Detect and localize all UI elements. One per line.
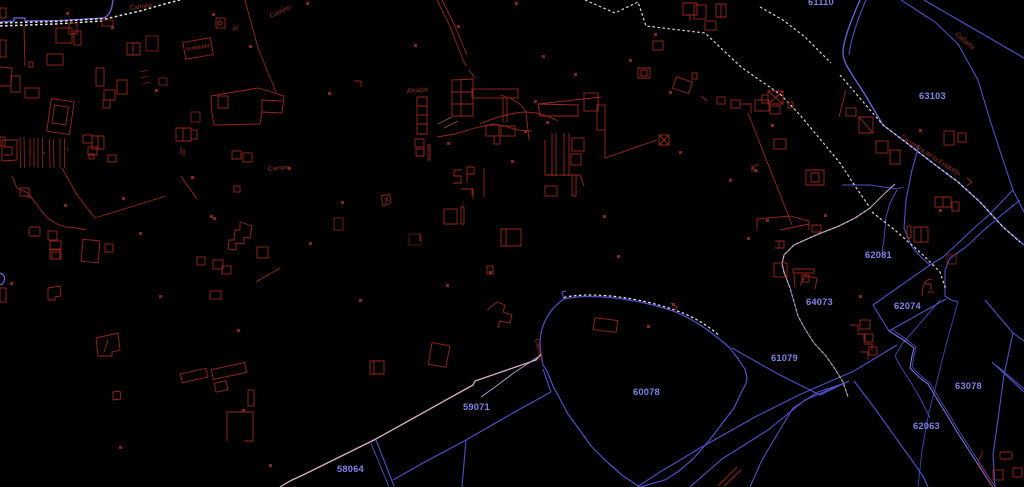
svg-text:62063: 62063	[913, 421, 940, 431]
svg-text:59071: 59071	[463, 402, 490, 412]
svg-text:58064: 58064	[337, 464, 364, 474]
svg-text:63103: 63103	[919, 91, 946, 101]
svg-text:64073: 64073	[806, 297, 833, 307]
svg-text:61110: 61110	[808, 0, 834, 7]
svg-text:63078: 63078	[955, 381, 982, 391]
svg-text:62081: 62081	[865, 250, 892, 260]
svg-text:62074: 62074	[894, 301, 921, 311]
svg-text:61079: 61079	[771, 353, 798, 363]
svg-text:60078: 60078	[633, 387, 660, 397]
